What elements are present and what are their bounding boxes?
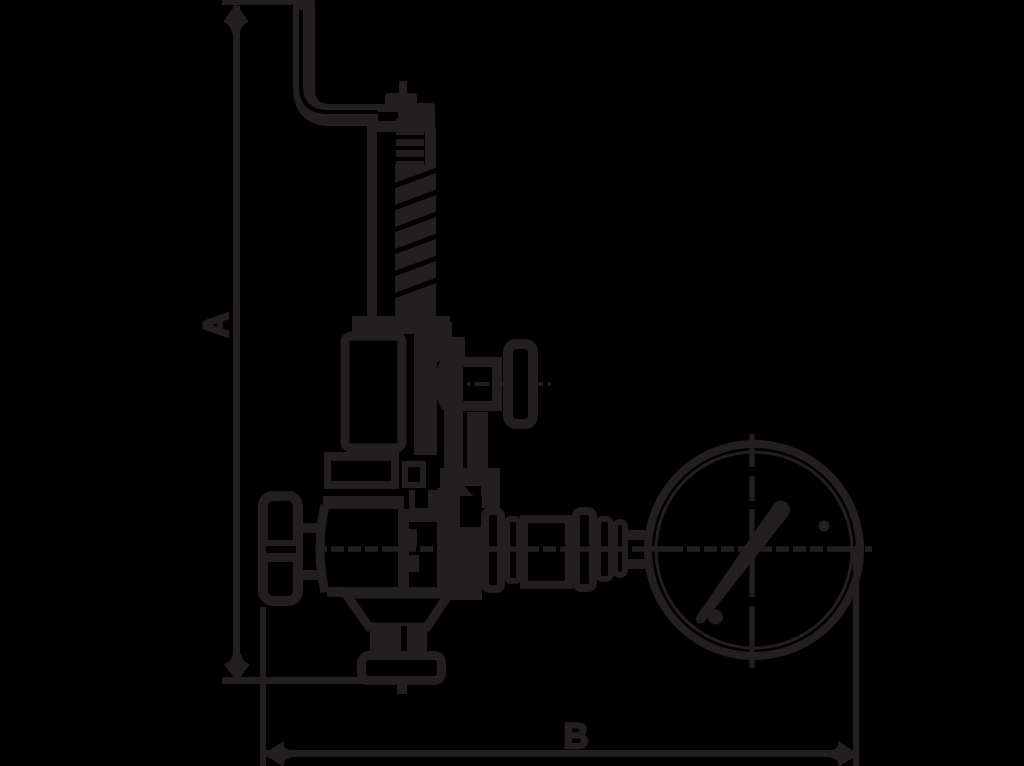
svg-text:A: A	[197, 312, 236, 337]
svg-text:B: B	[563, 717, 588, 756]
